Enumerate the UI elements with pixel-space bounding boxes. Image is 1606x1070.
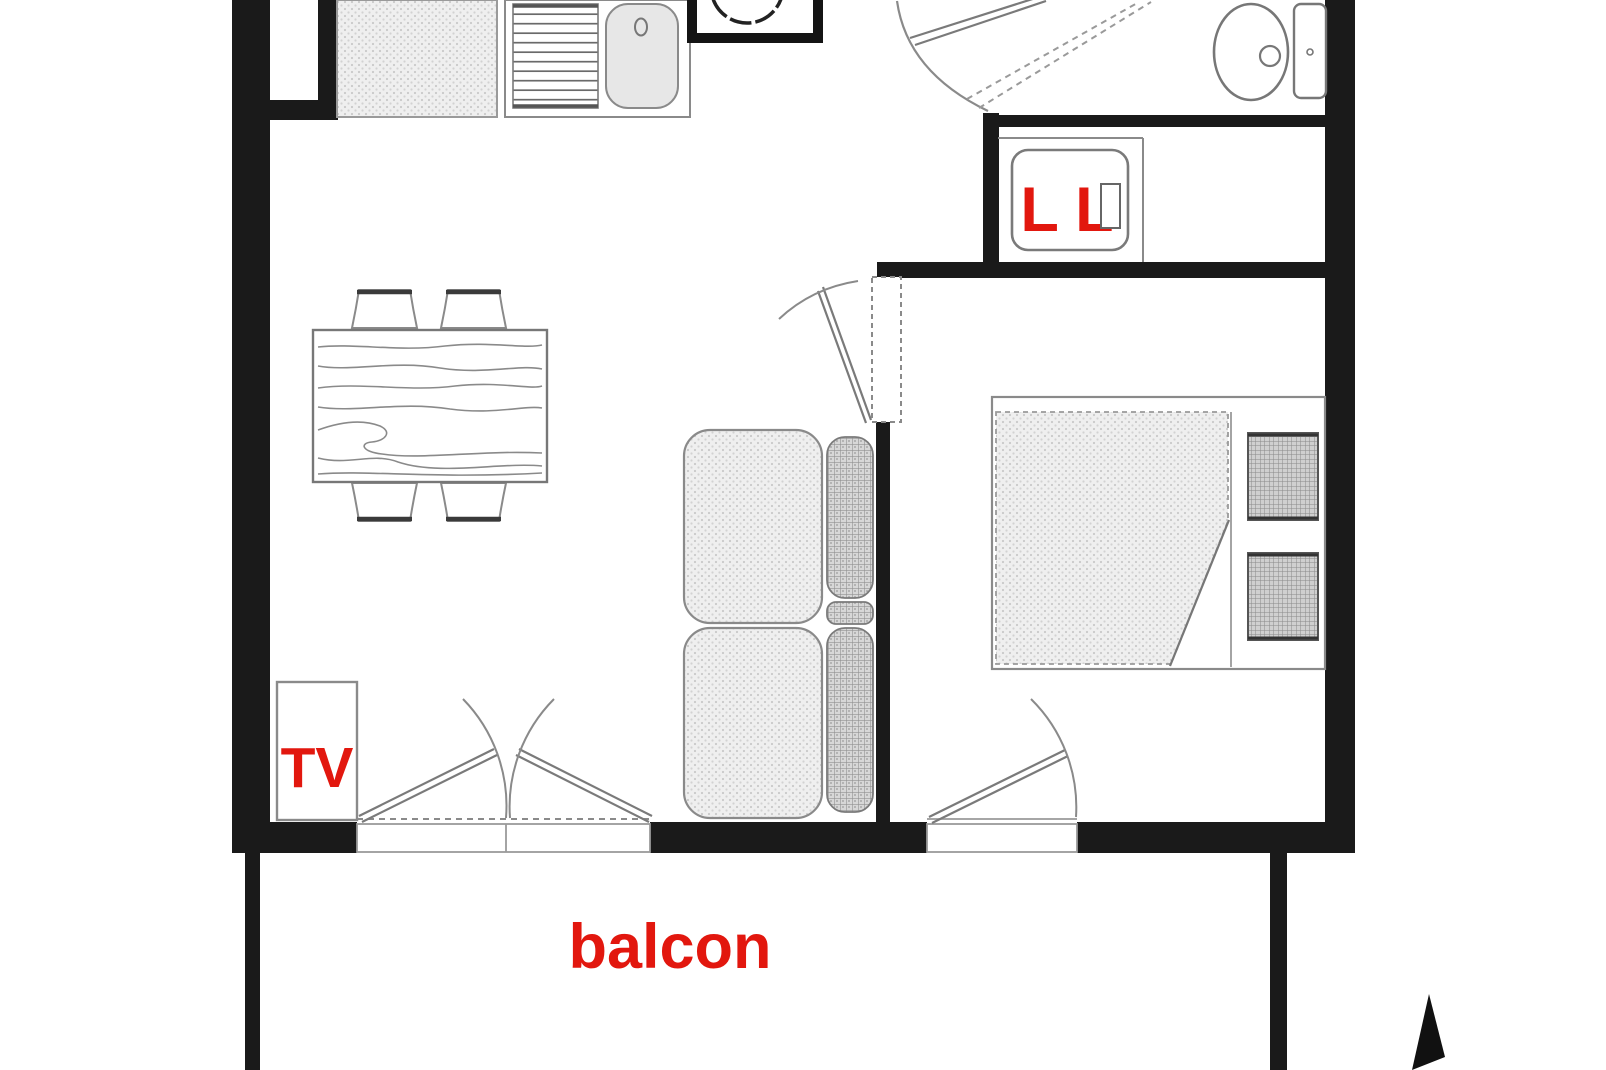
pillow [1248,433,1318,520]
french-door-right-arc [510,699,554,818]
bed [992,397,1325,669]
tv-label: TV [281,736,354,800]
french-door-right-leaf [516,749,652,822]
sofa [684,430,873,818]
wall-balcony-right [1270,853,1287,1070]
bedroom-balcony-door [927,699,1077,852]
toilet-flush-icon [1260,46,1280,66]
floor-plan-svg: L L TV [0,0,1606,1070]
wall-balcony-left [245,853,260,1070]
bathroom [897,0,1326,111]
sofa-seat-cushion [684,628,822,818]
sofa-seat-cushion [684,430,822,623]
stove [692,0,818,38]
bedroom-door-closed [872,277,901,422]
dining-set [313,290,547,521]
wall-living-bedroom-divider [876,420,890,822]
bedroom-balcony-door-leaf [929,750,1068,823]
toilet-tank [1294,4,1326,98]
wall-bottom-right [1077,822,1355,853]
balcony-label: balcon [568,912,771,982]
wall-bedroom-top [877,262,1325,278]
sofa-backrest [827,437,873,598]
sofa-backrest [827,602,873,624]
washer-nook: L L [998,138,1143,262]
wall-left [232,0,270,853]
floor-plan: L L TV [0,0,1606,1070]
faucet-icon [635,19,647,36]
bedroom-door [779,277,901,423]
entry-recess-jamb [318,0,338,100]
entry-recess-sill [232,100,338,120]
kitchen-counter [337,0,497,117]
washing-machine-label: L L [1020,175,1113,245]
washing-machine-door-icon [1101,184,1120,228]
bedroom-door-arc [779,281,858,319]
bedroom-balcony-door-arc [1031,699,1076,817]
tv-unit: TV [277,682,357,820]
wall-bottom-left [232,822,357,853]
north-arrow-icon [1412,994,1445,1070]
french-door-recess [357,824,650,852]
bedroom-balcony-door-recess [927,824,1077,852]
kitchen [337,0,818,117]
pillow [1248,553,1318,640]
entry-recess [270,0,318,100]
bathroom-door-swing [897,0,1151,111]
bedroom-door-leaf [818,287,871,423]
wall-bathroom-side [983,113,999,264]
drainboard [513,4,598,108]
wall-bottom-center [650,822,927,853]
wall-under-toilet [983,115,1355,127]
sofa-backrest [827,628,873,812]
wall-right [1325,0,1355,853]
french-doors [357,699,652,852]
french-door-left-arc [463,699,506,818]
french-door-left-leaf [359,749,497,822]
